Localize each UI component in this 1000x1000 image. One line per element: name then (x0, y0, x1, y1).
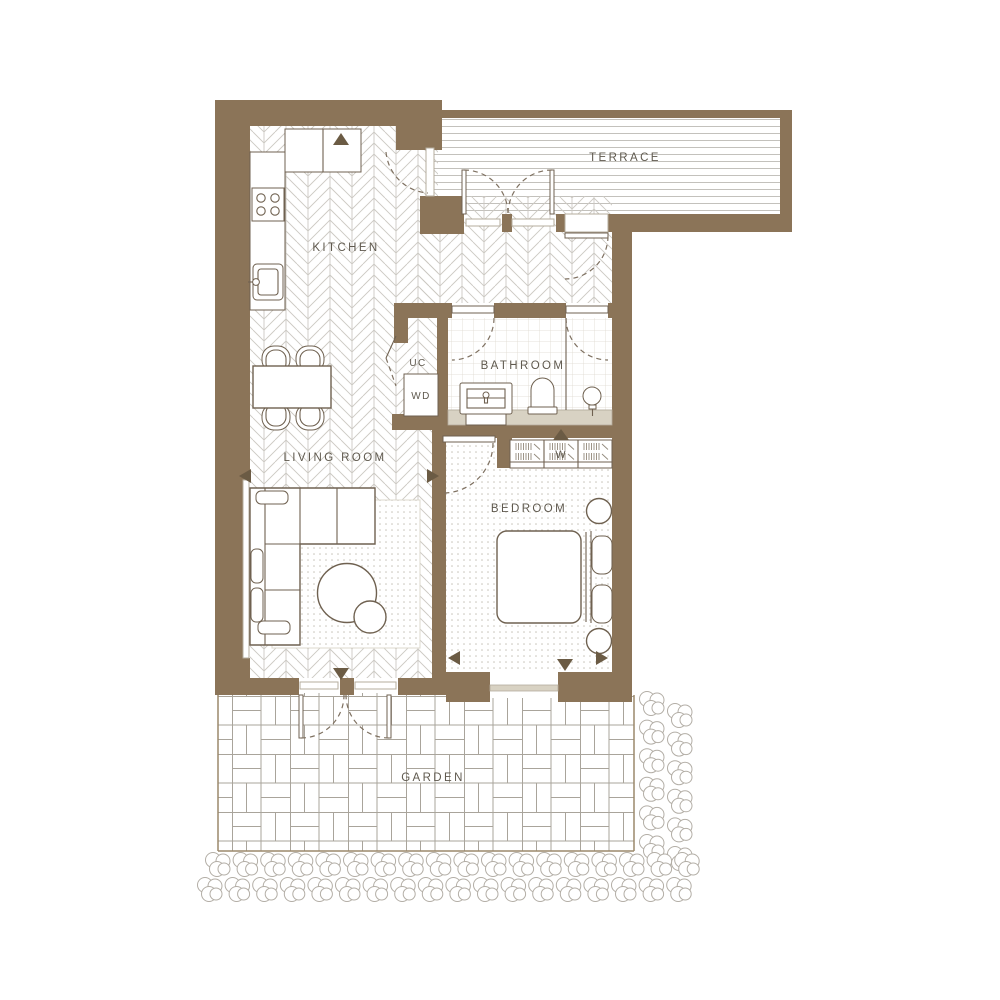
shrub-icon (529, 878, 554, 902)
shrub-icon (482, 853, 507, 877)
garden-door-glazing-right (355, 682, 396, 689)
floor-plan: UC WD W KITCHEN TERRACE BATHROO (0, 0, 1000, 1000)
shrub-icon (280, 878, 305, 902)
shrub-icon (564, 853, 589, 877)
wall-kitchen-top (215, 100, 402, 126)
wall-bedroom-bottom-a (446, 672, 490, 702)
entry-door-opening (565, 214, 608, 232)
shrub-icon (474, 878, 499, 902)
terrace-label: TERRACE (589, 152, 661, 164)
shrub-icon (198, 878, 223, 902)
wall-terrace-right (780, 110, 792, 232)
shrub-icon (537, 853, 562, 877)
bedside-table-icon (587, 499, 612, 524)
wall-right (612, 232, 632, 695)
shrub-icon (620, 853, 645, 877)
shrub-icon (391, 878, 416, 902)
pillow (592, 536, 612, 574)
shrub-icon (667, 878, 692, 902)
bedroom-door-leaf (443, 436, 495, 442)
uc-label: UC (409, 358, 426, 369)
floor-plan-page: UC WD W KITCHEN TERRACE BATHROO (0, 0, 1000, 1000)
wall-closet-right (437, 318, 448, 430)
garden-french-door-leaf-right (387, 695, 391, 738)
shrub-icon (418, 878, 443, 902)
wd-label: WD (411, 391, 430, 402)
vanity-sink-icon (460, 383, 512, 425)
hob-icon (252, 188, 284, 221)
shrub-icon (371, 853, 396, 877)
wall-living-bottom-b (398, 678, 446, 695)
garden-french-door-leaf-left (299, 695, 303, 738)
shrub-icon (344, 853, 369, 877)
entry-door-leaf (565, 233, 608, 238)
pillow (592, 585, 612, 623)
garden-door-glazing-left (300, 682, 338, 689)
shrub-icon (556, 878, 581, 902)
shrub-icon (640, 806, 665, 830)
shrub-icon (399, 853, 424, 877)
shrub-icon (668, 789, 693, 813)
shrub-icon (316, 853, 341, 877)
wall-kitchen-step (396, 100, 442, 150)
shrub-icon (446, 878, 471, 902)
kitchen-sink-icon (248, 264, 283, 300)
terrace-door-glazing-left (466, 219, 500, 226)
shrub-icon (426, 853, 451, 877)
shrub-icon (584, 878, 609, 902)
wall-bedroom-bottom-b (558, 672, 632, 702)
shrub-icon (639, 878, 664, 902)
shrub-icon (454, 853, 479, 877)
shower-door-leaf (566, 306, 608, 313)
shrub-icon (675, 853, 700, 877)
shrub-icon (668, 818, 693, 842)
shrub-icon (206, 853, 231, 877)
wall-left-window-pier (215, 480, 243, 658)
bathroom-label: BATHROOM (481, 360, 566, 372)
wall-left-lower-corner (215, 658, 250, 695)
shrub-icon (509, 853, 534, 877)
shrub-icon (647, 853, 672, 877)
garden-door-mullion (340, 678, 354, 695)
side-table-icon (354, 601, 386, 633)
kitchen-label: KITCHEN (312, 242, 379, 254)
shrub-icon (668, 704, 693, 728)
wall-bathroom-top-c (608, 303, 632, 318)
bathroom-door-leaf (452, 306, 494, 313)
wall-left-upper (215, 100, 250, 480)
shrub-icon (668, 732, 693, 756)
bedroom-window (490, 685, 558, 691)
wardrobe-label: W (555, 449, 566, 461)
garden-label: GARDEN (401, 772, 465, 784)
shrub-icon (592, 853, 617, 877)
shrub-icon (363, 878, 388, 902)
living-room-window (243, 480, 249, 658)
shrub-icon (336, 878, 361, 902)
wall-terrace-bottom-a (556, 214, 565, 232)
shrub-icon (640, 720, 665, 744)
living-room-label: LIVING ROOM (283, 452, 386, 464)
shrub-icon (640, 777, 665, 801)
shrub-icon (612, 878, 637, 902)
wall-bathroom-top-b (494, 303, 566, 318)
terrace-french-door-leaf-left (462, 170, 466, 214)
shrub-icon (640, 692, 665, 716)
wall-terrace-bottom-b (608, 214, 792, 232)
terrace-door-glazing-right (512, 219, 554, 226)
wall-terrace-pillar (420, 196, 464, 234)
shrub-icon (308, 878, 333, 902)
bedside-table-icon (587, 629, 612, 654)
wall-terrace-top (428, 110, 792, 118)
shrub-icon (288, 853, 313, 877)
shrub-icon (261, 853, 286, 877)
wall-living-bottom-a (250, 678, 299, 695)
shrub-icon (640, 749, 665, 773)
shrub-icon (668, 761, 693, 785)
terrace-french-door-leaf-right (550, 170, 554, 214)
dining-table-icon (253, 366, 331, 408)
shrub-icon (253, 878, 278, 902)
terrace-door-mullion (502, 214, 512, 232)
shrub-icon (501, 878, 526, 902)
kitchen-terrace-door-glazing (426, 148, 434, 196)
toilet-icon (528, 378, 557, 414)
bedroom-label: BEDROOM (491, 503, 567, 515)
shrub-icon (225, 878, 250, 902)
shrub-icon (233, 853, 258, 877)
